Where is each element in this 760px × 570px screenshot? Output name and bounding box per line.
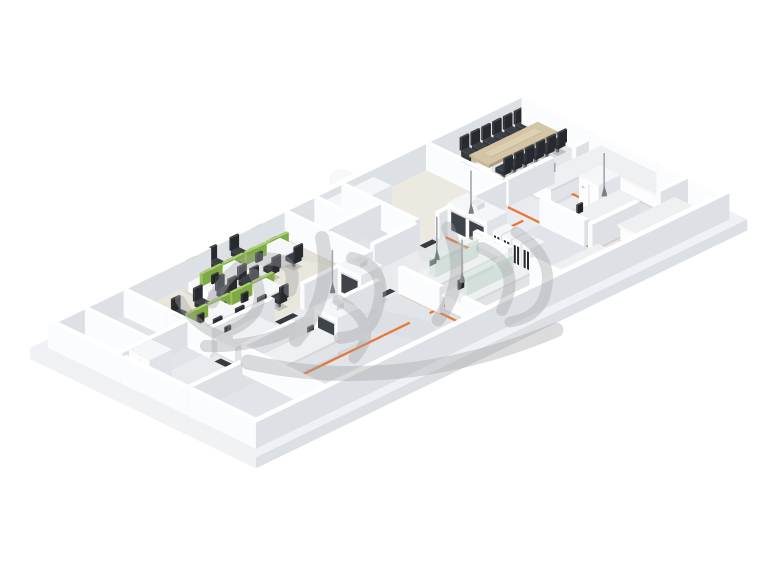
render-canvas <box>0 0 760 570</box>
conference-chair <box>470 132 472 146</box>
conference-chair <box>536 143 538 157</box>
gas-cylinder-cabinet-panel <box>517 246 519 265</box>
conference-chair <box>557 132 559 146</box>
office-chair <box>229 237 231 251</box>
conference-chair <box>514 153 516 167</box>
conference-chair <box>460 137 462 151</box>
desk-monitor <box>211 275 213 285</box>
office-chair <box>293 247 295 261</box>
desk-monitor <box>241 294 243 304</box>
conference-chair <box>481 127 483 141</box>
conference-chair <box>547 137 549 151</box>
wall <box>48 322 53 351</box>
conference-chair <box>503 158 505 172</box>
conference-chair <box>525 148 527 162</box>
conference-chair <box>492 122 494 136</box>
office-chair <box>279 287 281 301</box>
gas-cylinder-cabinet-panel <box>524 250 526 269</box>
gas-cylinder-cabinet-panel <box>527 251 529 270</box>
gas-cylinder-cabinet-panel <box>514 245 516 264</box>
scene-svg <box>0 0 760 570</box>
wall <box>251 420 256 449</box>
wall <box>300 282 305 310</box>
conference-chair <box>503 116 505 130</box>
conference-chair <box>514 111 516 125</box>
office-chair <box>193 288 195 302</box>
